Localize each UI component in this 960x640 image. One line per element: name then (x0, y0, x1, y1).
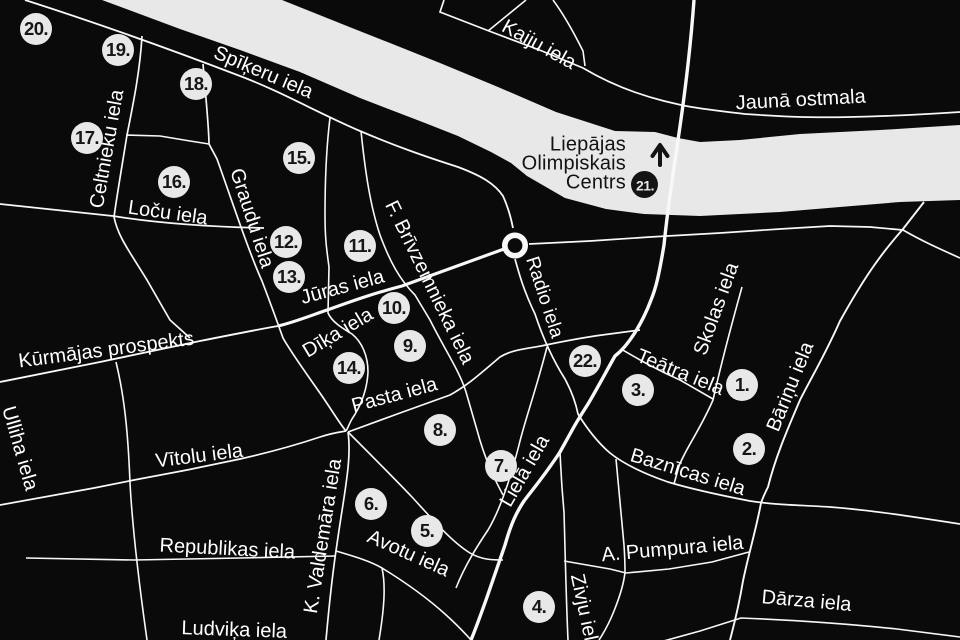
svg-text:20.: 20. (24, 18, 48, 39)
svg-text:22.: 22. (573, 350, 597, 371)
svg-text:7.: 7. (494, 455, 508, 476)
svg-text:6.: 6. (364, 493, 378, 514)
svg-text:Centrs: Centrs (566, 172, 626, 194)
svg-text:2.: 2. (742, 438, 756, 459)
svg-text:Ludviķa iela: Ludviķa iela (181, 617, 288, 640)
svg-text:18.: 18. (184, 73, 208, 94)
svg-text:11.: 11. (349, 235, 372, 256)
svg-text:12.: 12. (274, 231, 298, 252)
svg-text:15.: 15. (287, 147, 311, 168)
svg-text:16.: 16. (162, 171, 186, 192)
svg-text:5.: 5. (420, 520, 434, 541)
svg-text:19.: 19. (106, 39, 130, 60)
svg-text:13.: 13. (277, 266, 301, 287)
svg-text:17.: 17. (75, 127, 99, 148)
svg-text:3.: 3. (631, 379, 645, 400)
svg-text:1.: 1. (735, 374, 749, 395)
svg-text:4.: 4. (532, 596, 546, 617)
svg-text:8.: 8. (433, 419, 447, 440)
svg-text:14.: 14. (337, 357, 361, 378)
svg-text:10.: 10. (382, 297, 406, 318)
svg-text:9.: 9. (403, 335, 417, 356)
svg-text:21.: 21. (636, 178, 654, 194)
